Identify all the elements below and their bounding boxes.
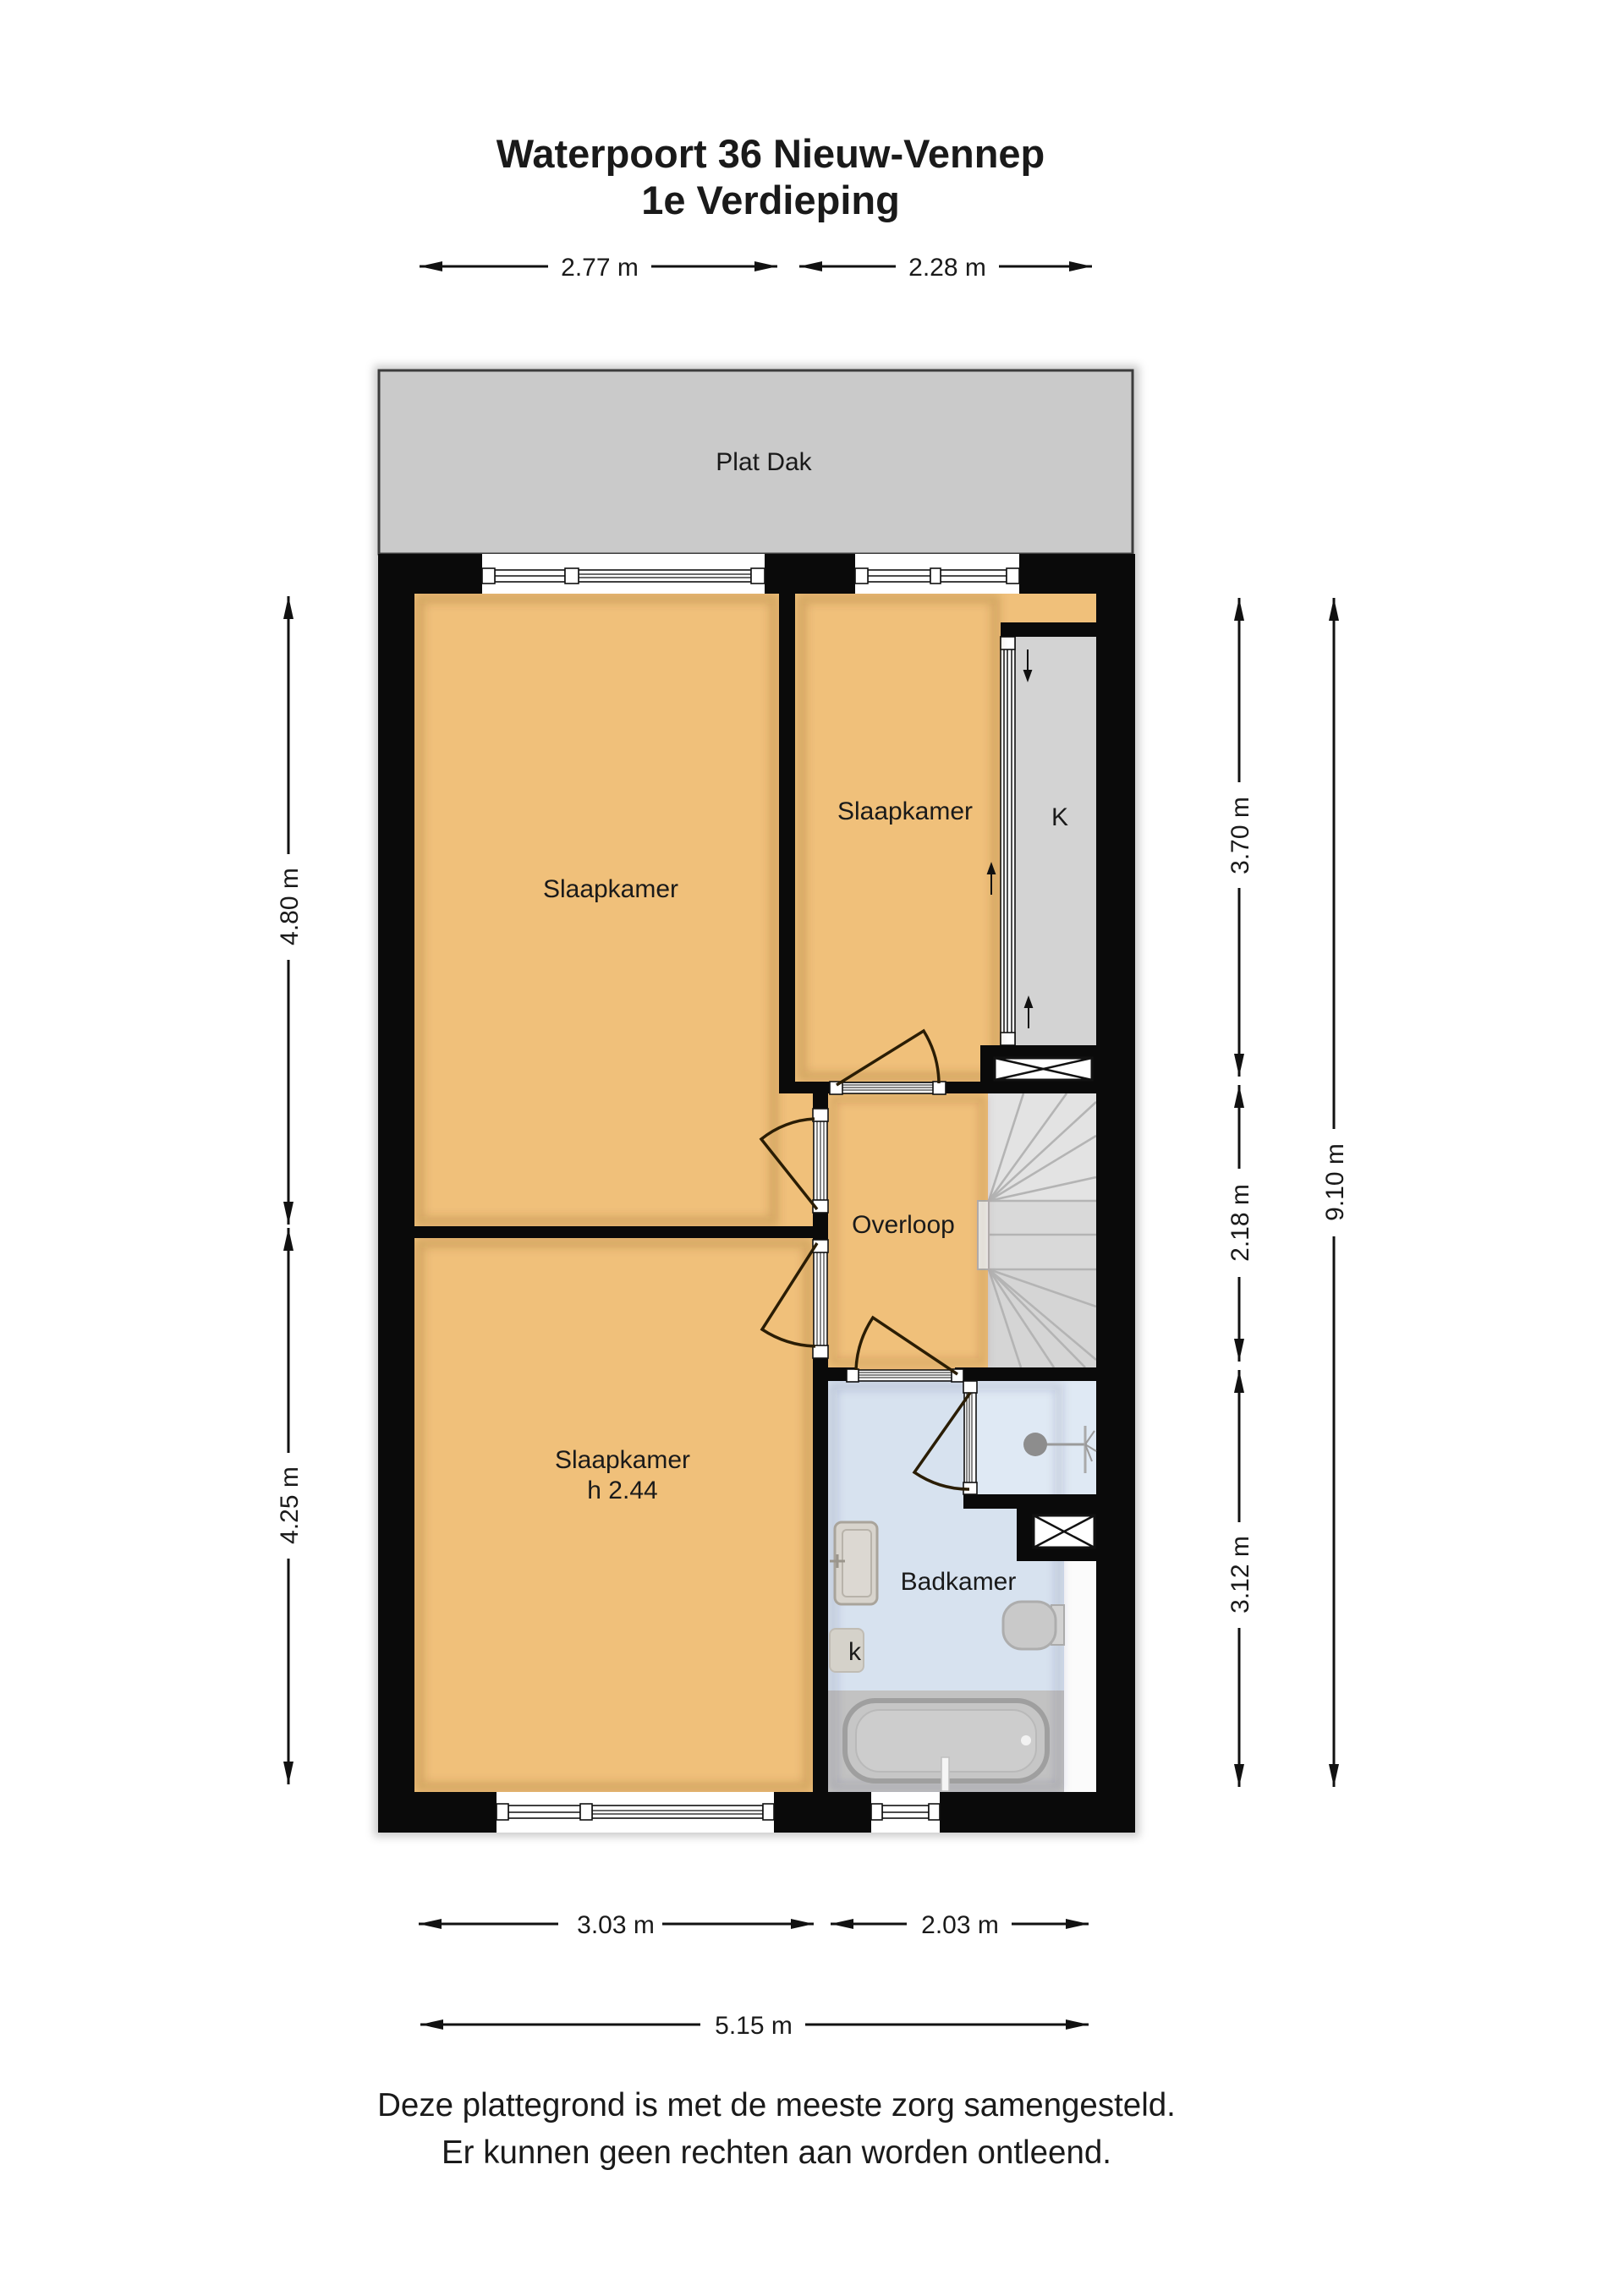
svg-text:k: k bbox=[848, 1638, 862, 1666]
svg-text:Badkamer: Badkamer bbox=[901, 1568, 1017, 1596]
svg-text:Plat Dak: Plat Dak bbox=[716, 448, 812, 476]
svg-text:2.18 m: 2.18 m bbox=[1226, 1184, 1254, 1262]
svg-text:2.28 m: 2.28 m bbox=[908, 254, 986, 282]
svg-text:Slaapkamer: Slaapkamer bbox=[837, 797, 973, 825]
svg-text:3.70 m: 3.70 m bbox=[1226, 797, 1254, 874]
svg-text:9.10 m: 9.10 m bbox=[1321, 1143, 1349, 1221]
svg-text:Slaapkamer: Slaapkamer bbox=[555, 1446, 690, 1474]
svg-text:2.03 m: 2.03 m bbox=[921, 1911, 999, 1939]
svg-text:h 2.44: h 2.44 bbox=[587, 1477, 657, 1504]
svg-text:3.03 m: 3.03 m bbox=[577, 1911, 655, 1939]
svg-text:Er kunnen geen rechten aan wor: Er kunnen geen rechten aan worden ontlee… bbox=[442, 2134, 1111, 2171]
svg-text:Overloop: Overloop bbox=[852, 1211, 955, 1239]
svg-text:Waterpoort 36 Nieuw-Vennep: Waterpoort 36 Nieuw-Vennep bbox=[497, 131, 1045, 176]
svg-text:4.80 m: 4.80 m bbox=[276, 868, 304, 945]
svg-text:K: K bbox=[1051, 803, 1068, 831]
svg-text:Slaapkamer: Slaapkamer bbox=[543, 875, 678, 903]
svg-text:1e Verdieping: 1e Verdieping bbox=[641, 178, 900, 222]
svg-text:3.12 m: 3.12 m bbox=[1226, 1536, 1254, 1614]
svg-text:2.77 m: 2.77 m bbox=[561, 254, 639, 282]
svg-text:4.25 m: 4.25 m bbox=[276, 1466, 304, 1544]
svg-text:Deze plattegrond is met de mee: Deze plattegrond is met de meeste zorg s… bbox=[377, 2087, 1176, 2123]
svg-text:5.15 m: 5.15 m bbox=[715, 2012, 793, 2040]
